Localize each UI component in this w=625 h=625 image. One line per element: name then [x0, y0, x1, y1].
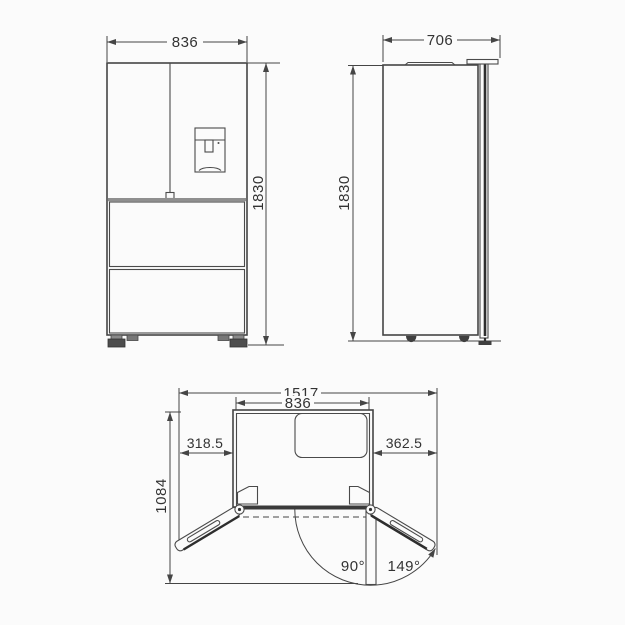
- upper-drawer: [110, 202, 245, 267]
- right-door-open-149: [369, 506, 437, 552]
- door-front-band: [238, 506, 368, 510]
- top-view: 1517 836: [153, 384, 437, 585]
- left-corner-bracket: [238, 487, 258, 505]
- side-door: [467, 60, 498, 339]
- dispenser-button: [218, 142, 220, 144]
- left-door-open: [173, 506, 241, 552]
- side-view: 706 1830: [336, 31, 501, 345]
- right-corner-bracket: [350, 487, 370, 505]
- right-door-projection-label: 362.5: [386, 435, 423, 451]
- front-height-dimension: 1830: [248, 63, 284, 345]
- side-cabinet-outline: [383, 65, 478, 335]
- side-leveling-foot: [479, 341, 492, 345]
- dimension-diagram-svg: 836: [0, 0, 625, 625]
- side-height-label: 1830: [336, 175, 353, 210]
- front-feet: [108, 335, 247, 347]
- side-height-dimension: 1830: [336, 66, 501, 342]
- front-right-leveling-foot: [230, 339, 247, 347]
- right-door-90deg: [366, 511, 376, 585]
- lower-drawer: [110, 270, 245, 334]
- side-feet: [406, 336, 492, 345]
- front-height-label: 1830: [250, 175, 267, 210]
- door-angle-90-label: 90°: [341, 558, 365, 575]
- door-angle-149-label: 149°: [387, 558, 420, 575]
- front-left-roller: [127, 335, 138, 341]
- front-width-label: 836: [172, 34, 199, 51]
- left-door-projection-dimension: 318.5: [180, 435, 233, 453]
- front-left-leveling-foot: [108, 339, 125, 347]
- right-door-projection-dimension: 362.5: [373, 435, 437, 453]
- side-top-hinge: [467, 60, 498, 65]
- water-dispenser: [195, 128, 225, 172]
- refrigerator-dimension-drawing: 836: [0, 0, 625, 625]
- front-right-roller: [218, 335, 229, 341]
- top-compartment: [295, 414, 367, 458]
- open-depth-label: 1084: [153, 478, 170, 513]
- front-view: 836: [107, 33, 284, 347]
- side-depth-dimension: 706: [383, 31, 500, 62]
- front-width-dimension: 836: [107, 33, 247, 62]
- left-door-projection-label: 318.5: [187, 435, 224, 451]
- door-bottom-band: [108, 198, 246, 201]
- door-split-hinge: [166, 193, 174, 199]
- side-depth-label: 706: [427, 32, 454, 49]
